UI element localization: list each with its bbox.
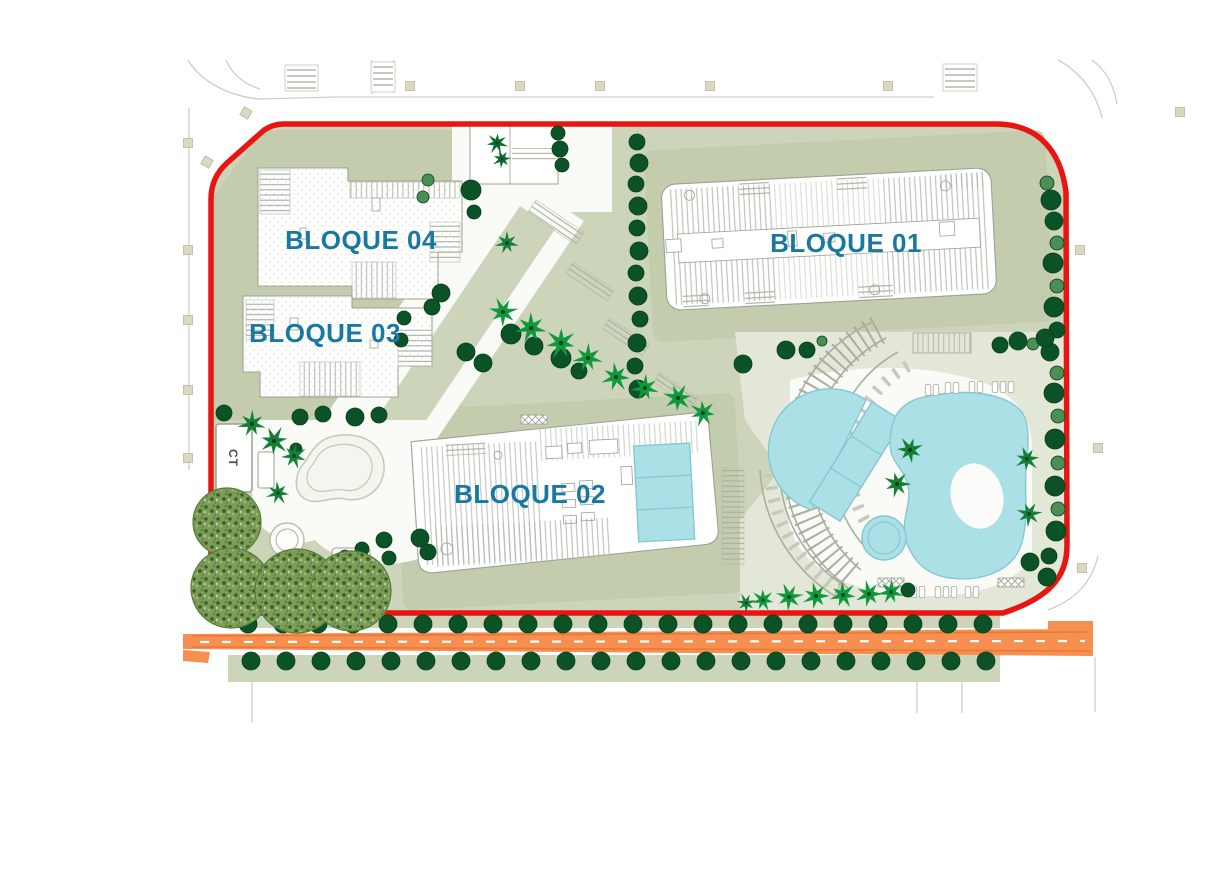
crosswalk [943, 64, 977, 91]
site-plan: CT [0, 0, 1220, 870]
label-bloque-01: BLOQUE 01 [770, 228, 922, 258]
ct-label: CT [226, 449, 240, 467]
label-bloque-02: BLOQUE 02 [454, 479, 606, 509]
crosswalk [371, 62, 395, 92]
label-bloque-04: BLOQUE 04 [285, 225, 437, 255]
label-bloque-03: BLOQUE 03 [249, 318, 401, 348]
entrance-pavilion [470, 126, 558, 184]
crosswalk [285, 65, 318, 91]
site-plan-svg: CT [0, 0, 1220, 870]
